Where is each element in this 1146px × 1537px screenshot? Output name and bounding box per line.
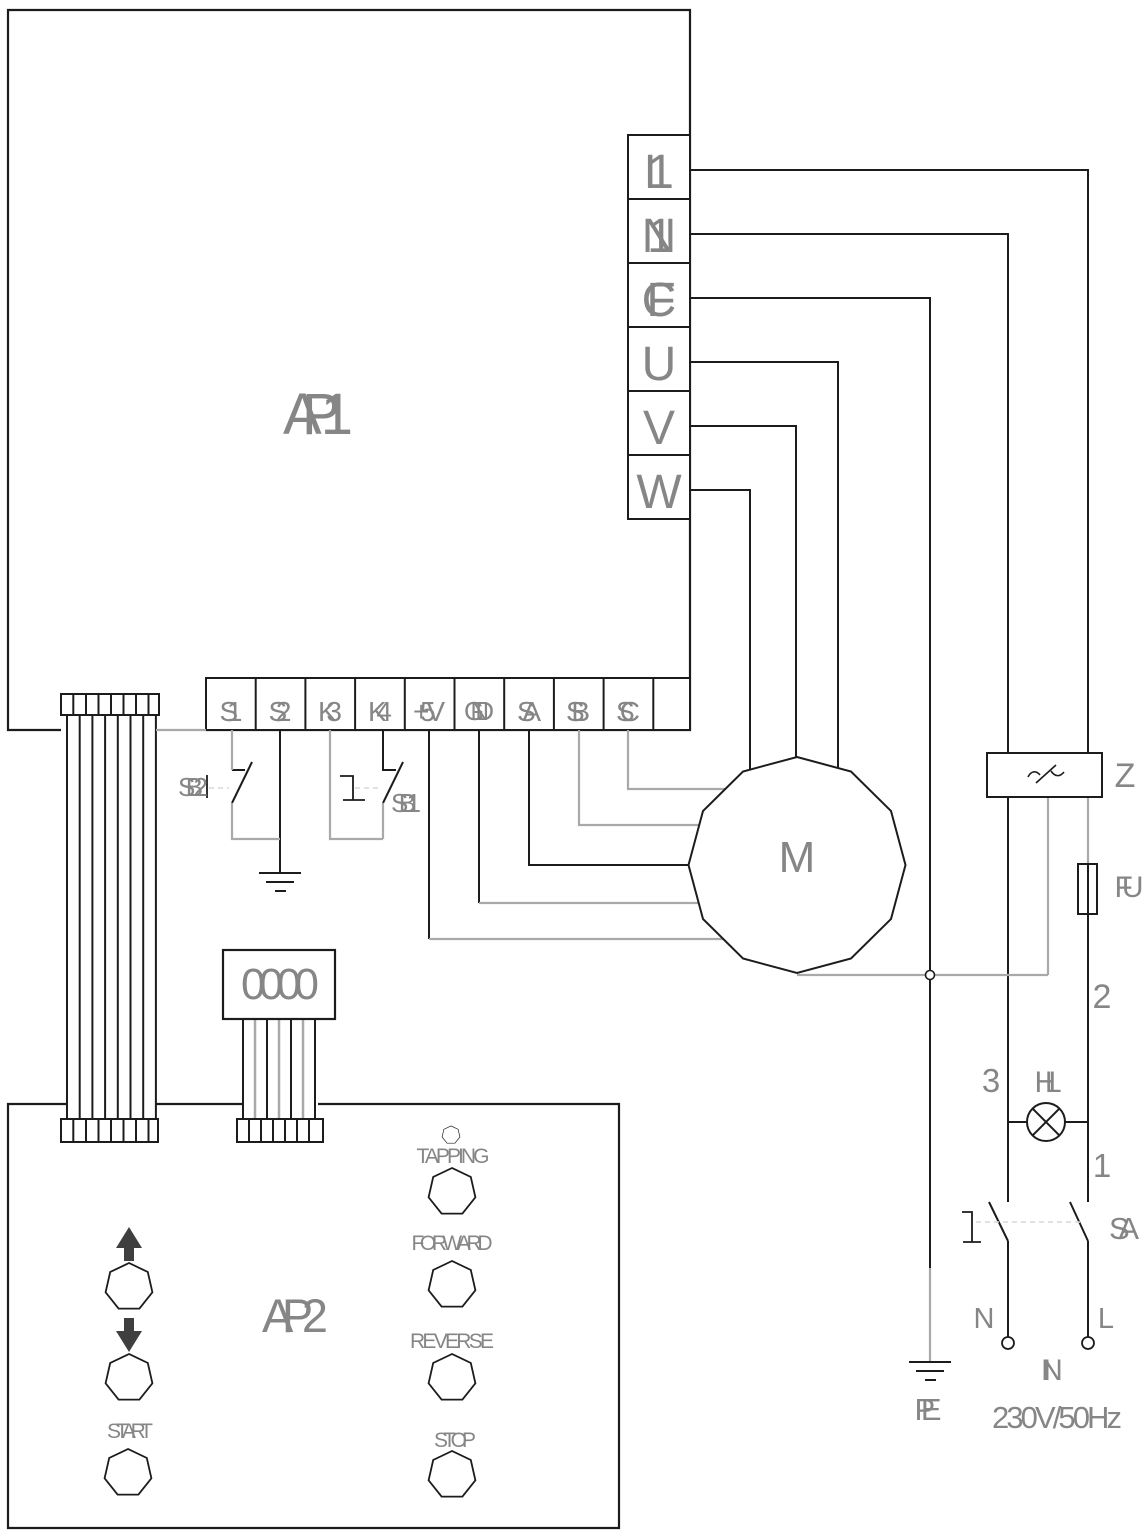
- start-label: START: [107, 1420, 153, 1443]
- pe-label: PE: [915, 1392, 942, 1427]
- label-fc: FC: [642, 274, 677, 327]
- wire-w: [690, 490, 750, 770]
- junction-node: [926, 971, 935, 980]
- ribbon-cable: [67, 715, 156, 1119]
- wire-l-branch: [1070, 864, 1088, 1337]
- tapping-led-icon: [442, 1126, 460, 1143]
- wire1-label: 1: [1093, 1147, 1111, 1184]
- forward-label: FORWARD: [412, 1232, 493, 1255]
- wire-k3-k4-link: [330, 730, 383, 839]
- label-s1: S1: [220, 696, 243, 727]
- wire-s1-upper: [232, 762, 252, 803]
- label-n1: N1: [642, 210, 677, 263]
- fu-label: FU: [1115, 871, 1144, 904]
- forward-button[interactable]: [429, 1261, 476, 1307]
- wire3-label: 3: [982, 1062, 1000, 1099]
- in-label: IN: [1041, 1354, 1063, 1387]
- wire-sc-sensor: [628, 730, 725, 789]
- label-s2: S2: [269, 696, 292, 727]
- motor-label: M: [779, 833, 816, 882]
- label-sc-term: SC: [616, 696, 640, 727]
- label-k3: K3: [318, 696, 342, 727]
- display-connector: [237, 1119, 323, 1142]
- display-ribbon: [243, 1019, 315, 1119]
- label-sa-term: SA: [517, 696, 541, 727]
- labels: AP1 L1 N1 FC U V W S1 S2 K3 K4 +5V GND S…: [107, 146, 1144, 1452]
- tapping-button[interactable]: [429, 1168, 476, 1214]
- lamp-icon: [1027, 1103, 1065, 1141]
- stop-label: STOP: [434, 1429, 476, 1452]
- label-gnd: GND: [464, 696, 494, 726]
- wire-v: [690, 426, 796, 757]
- ribbon-connector-top: [61, 694, 159, 715]
- neutral-label: N: [974, 1303, 995, 1335]
- rating-label: 230V/50Hz: [992, 1400, 1122, 1435]
- z-filter: [987, 753, 1102, 797]
- speed-down-button[interactable]: [106, 1354, 153, 1400]
- arrow-up-icon: [116, 1227, 142, 1261]
- label-5v: +5V: [413, 696, 445, 727]
- ap2-arrows: [116, 1227, 142, 1352]
- label-u: U: [642, 338, 677, 391]
- display-value: 0000: [241, 960, 319, 1009]
- wire-u: [690, 362, 838, 768]
- ground-icon-pe: [909, 1362, 951, 1380]
- wire-sb-sensor: [579, 730, 699, 825]
- ap1-label: AP1: [283, 382, 353, 447]
- wires-gray: [156, 730, 1088, 1362]
- neutral-terminal: [1002, 1337, 1014, 1349]
- mechanical-links: [209, 788, 1084, 1222]
- sb1-hook: [340, 776, 365, 800]
- label-l1: L1: [644, 146, 674, 199]
- label-w: W: [636, 466, 682, 519]
- schematic-canvas: AP1 L1 N1 FC U V W S1 S2 K3 K4 +5V GND S…: [0, 0, 1146, 1537]
- sa-hook: [962, 1212, 981, 1242]
- wire2-label: 2: [1093, 978, 1112, 1016]
- hl-label: HL: [1035, 1066, 1062, 1099]
- label-v: V: [643, 402, 675, 455]
- sb1-label: SB1: [391, 788, 421, 818]
- start-button[interactable]: [105, 1449, 152, 1495]
- wire-n1: [690, 234, 1008, 753]
- line-terminal: [1082, 1337, 1094, 1349]
- reverse-button[interactable]: [429, 1354, 476, 1400]
- ground-icon-s2: [259, 873, 301, 891]
- label-sb-term: SB: [566, 696, 590, 727]
- speed-up-button[interactable]: [106, 1263, 153, 1309]
- arrow-down-icon: [116, 1318, 142, 1352]
- sb2-label: SB2: [178, 772, 208, 802]
- wiring-diagram: AP1 L1 N1 FC U V W S1 S2 K3 K4 +5V GND S…: [0, 0, 1146, 1537]
- line-label: L: [1098, 1303, 1114, 1335]
- label-k4: K4: [368, 696, 392, 727]
- z-label: Z: [1115, 757, 1136, 795]
- wire-s1-gray: [232, 730, 280, 839]
- ap1-box: [8, 10, 690, 730]
- wire-sa-sensor: [529, 730, 689, 865]
- sa-switch-label: SA: [1109, 1211, 1139, 1246]
- tapping-label: TAPPING: [417, 1145, 490, 1168]
- ap2-label: AP2: [262, 1289, 328, 1342]
- ribbon-connector-bottom: [61, 1119, 158, 1142]
- stop-button[interactable]: [429, 1451, 476, 1497]
- reverse-label: REVERSE: [410, 1330, 494, 1353]
